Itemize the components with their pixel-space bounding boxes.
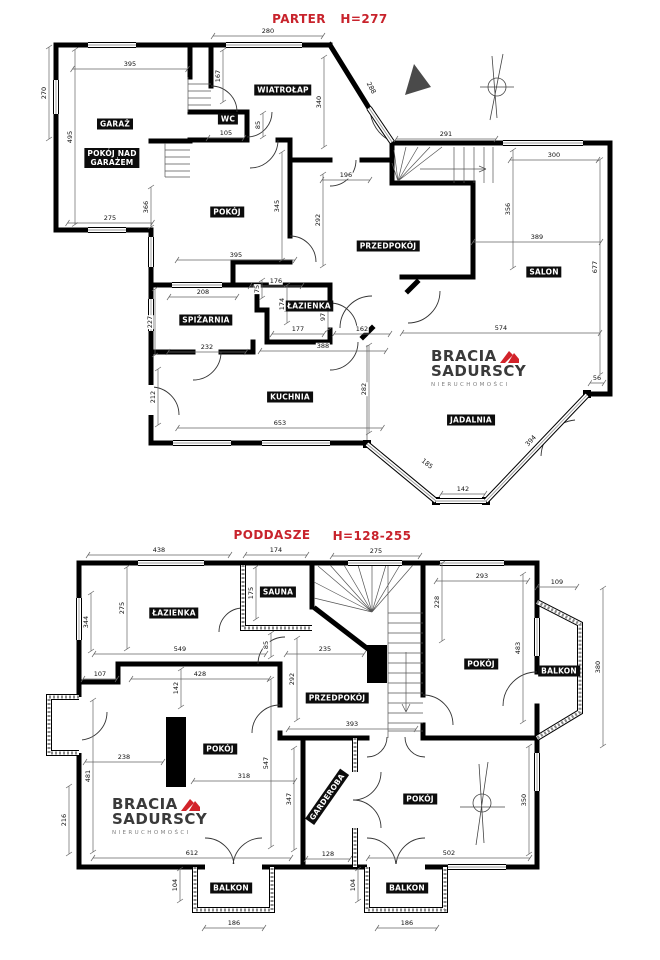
dim-label-162: 162 bbox=[355, 326, 369, 333]
dim-label-174: 174 bbox=[279, 297, 286, 311]
room-label-garaż: GARAŻ bbox=[97, 119, 133, 130]
dim-label-481: 481 bbox=[85, 769, 92, 783]
room-label-salon: SALON bbox=[526, 267, 561, 278]
brand-word-3: NIERUCHOMOŚCI bbox=[431, 382, 526, 388]
brand-logo-parter: BRACIA SADURSCY NIERUCHOMOŚCI bbox=[431, 349, 526, 388]
poddasze-title: PODDASZE bbox=[234, 528, 311, 542]
room-label-jadalnia: JADALNIA bbox=[447, 415, 495, 426]
dim-label-275: 275 bbox=[103, 215, 117, 222]
brand-mark-icon bbox=[499, 350, 519, 363]
dim-label-275: 275 bbox=[119, 601, 126, 615]
brand-mark-icon bbox=[180, 798, 200, 811]
dim-label-677: 677 bbox=[592, 260, 599, 274]
dim-label-107: 107 bbox=[93, 671, 107, 678]
dim-label-142: 142 bbox=[456, 486, 470, 493]
dim-label-174: 174 bbox=[269, 547, 283, 554]
room-label-łazienka: ŁAZIENKA bbox=[284, 301, 333, 312]
dim-label-85: 85 bbox=[255, 120, 262, 130]
parter-height-label: H=277 bbox=[340, 12, 387, 26]
room-label-przedpokój: PRZEDPOKÓJ bbox=[357, 241, 420, 252]
dim-label-56: 56 bbox=[592, 375, 602, 382]
dim-label-292: 292 bbox=[289, 672, 296, 686]
dim-label-128: 128 bbox=[321, 851, 335, 858]
brand-word-2: SADURSCY bbox=[431, 364, 526, 379]
dim-label-350: 350 bbox=[521, 793, 528, 807]
dim-label-196: 196 bbox=[339, 172, 353, 179]
dim-label-235: 235 bbox=[318, 646, 332, 653]
room-label-balkon: BALKON bbox=[538, 666, 580, 677]
dim-label-300: 300 bbox=[547, 152, 561, 159]
dim-label-238: 238 bbox=[117, 754, 131, 761]
dim-label-216: 216 bbox=[61, 813, 68, 827]
dim-label-280: 280 bbox=[261, 28, 275, 35]
room-label-łazienka: ŁAZIENKA bbox=[149, 608, 198, 619]
dimension-lines-layer bbox=[0, 0, 660, 960]
dim-label-232: 232 bbox=[200, 344, 214, 351]
dim-label-366: 366 bbox=[143, 200, 150, 214]
dim-label-395: 395 bbox=[123, 61, 137, 68]
dim-label-393: 393 bbox=[345, 721, 359, 728]
dim-label-208: 208 bbox=[196, 289, 210, 296]
dim-label-270: 270 bbox=[41, 86, 48, 100]
dim-label-388: 388 bbox=[316, 343, 330, 350]
dim-label-574: 574 bbox=[494, 325, 508, 332]
dim-label-227: 227 bbox=[147, 315, 154, 329]
dim-label-653: 653 bbox=[273, 420, 287, 427]
dim-label-502: 502 bbox=[442, 850, 456, 857]
dim-label-347: 347 bbox=[286, 792, 293, 806]
dim-label-549: 549 bbox=[173, 646, 187, 653]
room-label-balkon: BALKON bbox=[386, 883, 428, 894]
dim-label-228: 228 bbox=[434, 595, 441, 609]
room-label-kuchnia: KUCHNIA bbox=[267, 392, 313, 403]
dim-label-85: 85 bbox=[263, 640, 270, 650]
dim-label-275: 275 bbox=[369, 548, 383, 555]
dim-label-293: 293 bbox=[475, 573, 489, 580]
dim-label-438: 438 bbox=[152, 547, 166, 554]
dim-label-212: 212 bbox=[150, 390, 157, 404]
dim-label-345: 345 bbox=[274, 199, 281, 213]
dim-label-177: 177 bbox=[291, 326, 305, 333]
brand-word-2: SADURSCY bbox=[112, 812, 207, 827]
dim-label-380: 380 bbox=[595, 660, 602, 674]
poddasze-height-label: H=128-255 bbox=[333, 529, 412, 543]
dim-label-186: 186 bbox=[227, 920, 241, 927]
dim-label-104: 104 bbox=[350, 878, 357, 892]
room-label-pokój: POKÓJ bbox=[464, 659, 498, 670]
dim-label-109: 109 bbox=[550, 579, 564, 586]
dim-label-176: 176 bbox=[269, 278, 283, 285]
dim-label-175: 175 bbox=[248, 586, 255, 600]
dim-label-186: 186 bbox=[400, 920, 414, 927]
room-label-balkon: BALKON bbox=[210, 883, 252, 894]
dim-label-356: 356 bbox=[505, 202, 512, 216]
dim-label-428: 428 bbox=[193, 671, 207, 678]
room-label-pokój-nad-garażem: POKÓJ NAD GARAŻEM bbox=[84, 148, 139, 168]
floor-plan-page: GARAŻPOKÓJ NAD GARAŻEMWIATROŁAPWCPOKÓJPR… bbox=[0, 0, 660, 960]
room-label-pokój: POKÓJ bbox=[203, 744, 237, 755]
dim-label-75: 75 bbox=[254, 284, 261, 294]
room-label-spiżarnia: SPIŻARNIA bbox=[179, 315, 232, 326]
room-label-pokój: POKÓJ bbox=[210, 207, 244, 218]
dim-label-483: 483 bbox=[515, 641, 522, 655]
dim-label-612: 612 bbox=[185, 850, 199, 857]
dim-label-389: 389 bbox=[530, 234, 544, 241]
parter-title: PARTER bbox=[272, 12, 326, 26]
brand-word-3: NIERUCHOMOŚCI bbox=[112, 830, 207, 836]
dim-label-105: 105 bbox=[219, 130, 233, 137]
dim-label-547: 547 bbox=[263, 756, 270, 770]
room-label-wc: WC bbox=[218, 114, 238, 125]
dim-label-495: 495 bbox=[67, 130, 74, 144]
dim-label-395: 395 bbox=[229, 252, 243, 259]
dim-label-104: 104 bbox=[172, 878, 179, 892]
room-label-wiatrołap: WIATROŁAP bbox=[254, 85, 311, 96]
dim-label-282: 282 bbox=[361, 382, 368, 396]
room-label-pokój: POKÓJ bbox=[403, 794, 437, 805]
dim-label-167: 167 bbox=[215, 69, 222, 83]
dim-label-142: 142 bbox=[173, 681, 180, 695]
dim-label-340: 340 bbox=[316, 95, 323, 109]
dim-label-292: 292 bbox=[315, 213, 322, 227]
dim-label-97: 97 bbox=[320, 312, 327, 322]
dim-label-344: 344 bbox=[83, 615, 90, 629]
dim-label-318: 318 bbox=[237, 773, 251, 780]
room-label-przedpokój: PRZEDPOKÓJ bbox=[306, 693, 369, 704]
dim-label-291: 291 bbox=[439, 131, 453, 138]
room-label-sauna: SAUNA bbox=[260, 587, 296, 598]
brand-logo-poddasze: BRACIA SADURSCY NIERUCHOMOŚCI bbox=[112, 797, 207, 836]
